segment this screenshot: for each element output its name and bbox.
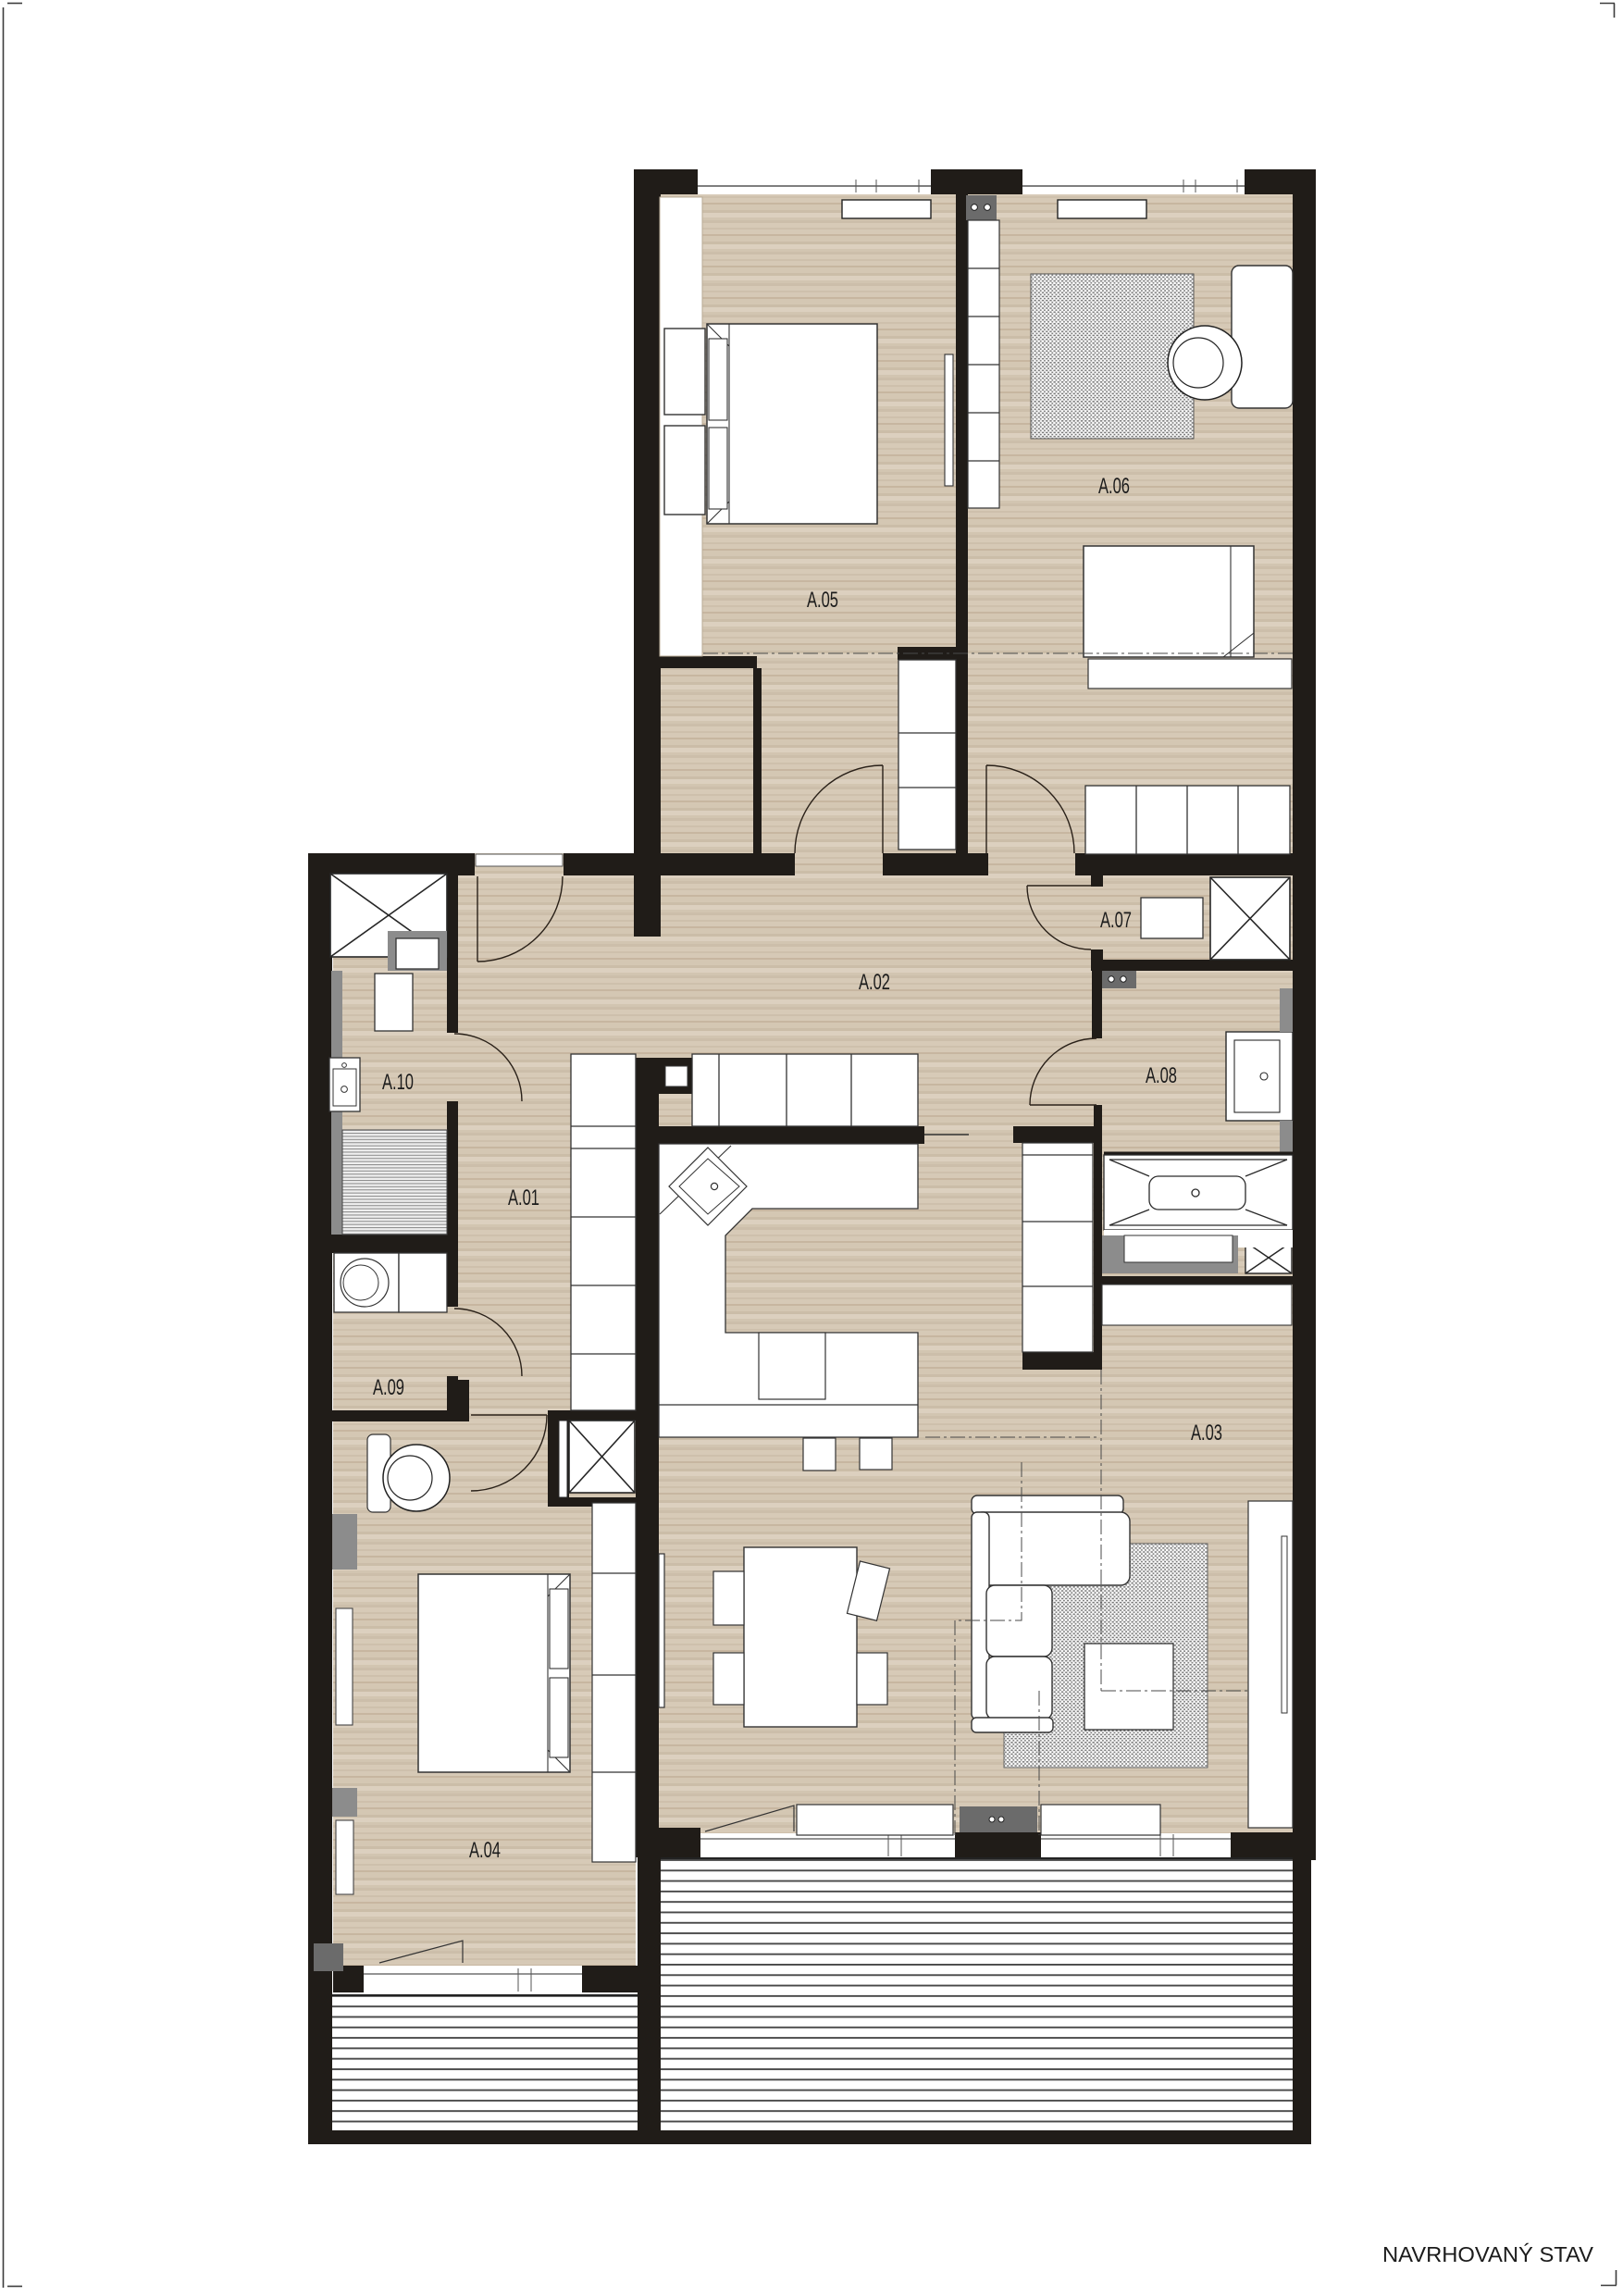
svg-text:NAVRHOVANÝ STAV: NAVRHOVANÝ STAV bbox=[1382, 2242, 1594, 2266]
svg-text:A.01: A.01 bbox=[508, 1185, 539, 1210]
svg-text:A.05: A.05 bbox=[807, 588, 838, 613]
svg-text:A.03: A.03 bbox=[1191, 1421, 1222, 1446]
svg-text:A.02: A.02 bbox=[859, 970, 890, 995]
svg-text:A.09: A.09 bbox=[373, 1375, 404, 1400]
svg-text:A.08: A.08 bbox=[1146, 1063, 1177, 1088]
svg-text:A.07: A.07 bbox=[1100, 908, 1132, 933]
svg-text:A.10: A.10 bbox=[382, 1070, 414, 1095]
svg-text:A.04: A.04 bbox=[469, 1838, 501, 1863]
svg-text:A.06: A.06 bbox=[1098, 474, 1130, 499]
